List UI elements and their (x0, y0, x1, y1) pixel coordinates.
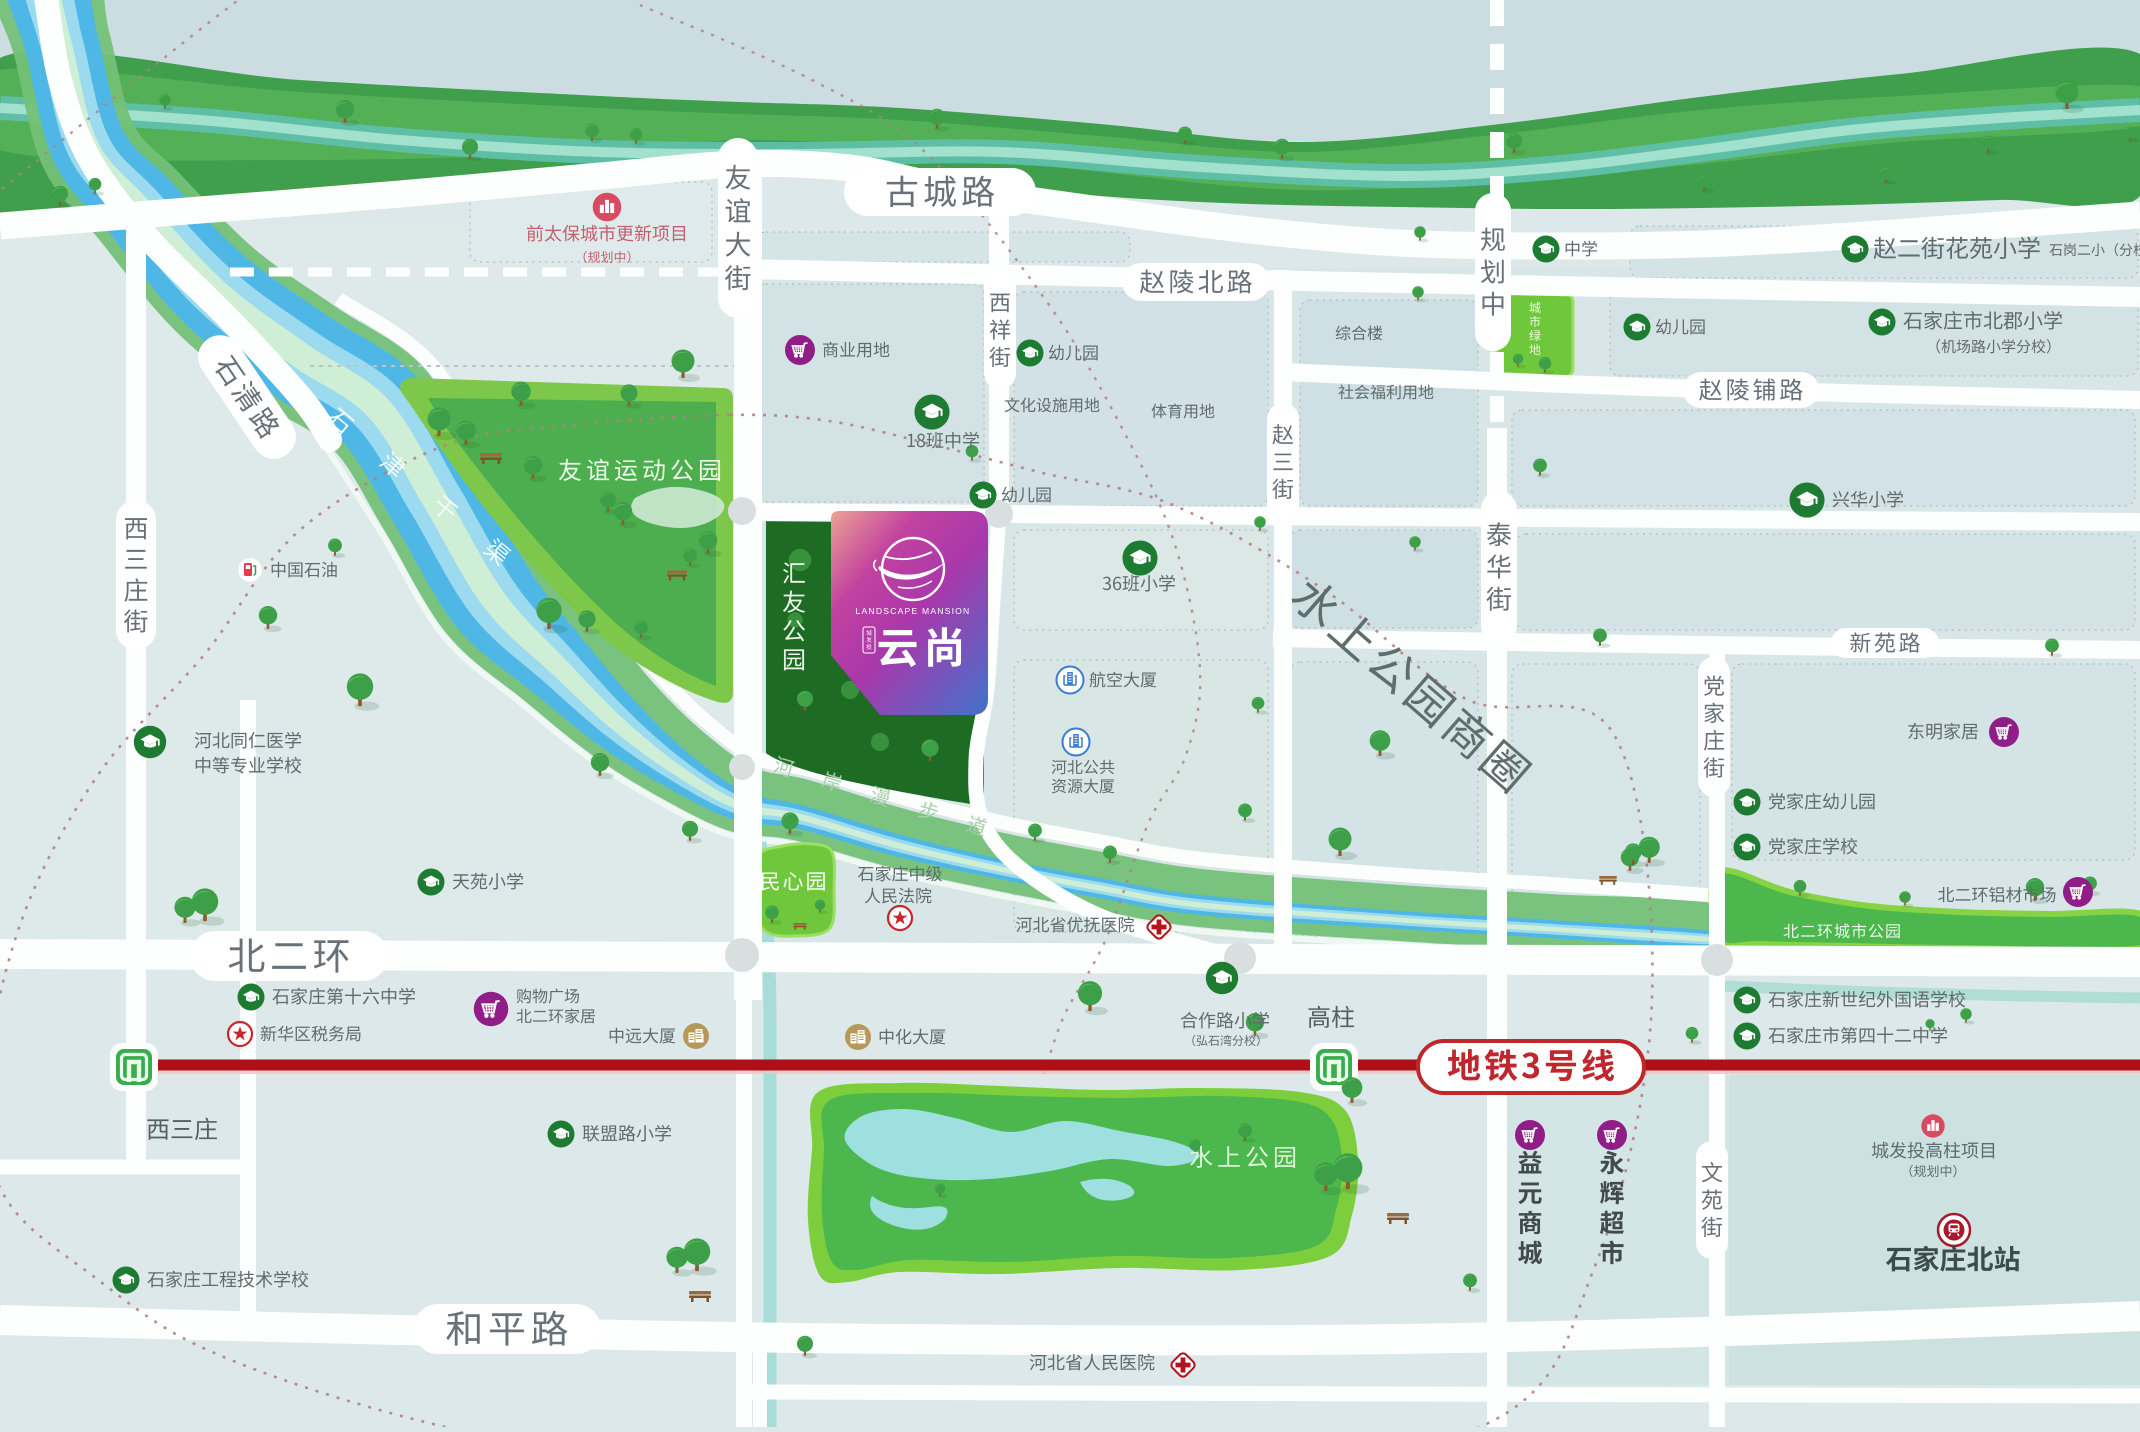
svg-text:LANDSCAPE MANSION: LANDSCAPE MANSION (856, 606, 971, 616)
